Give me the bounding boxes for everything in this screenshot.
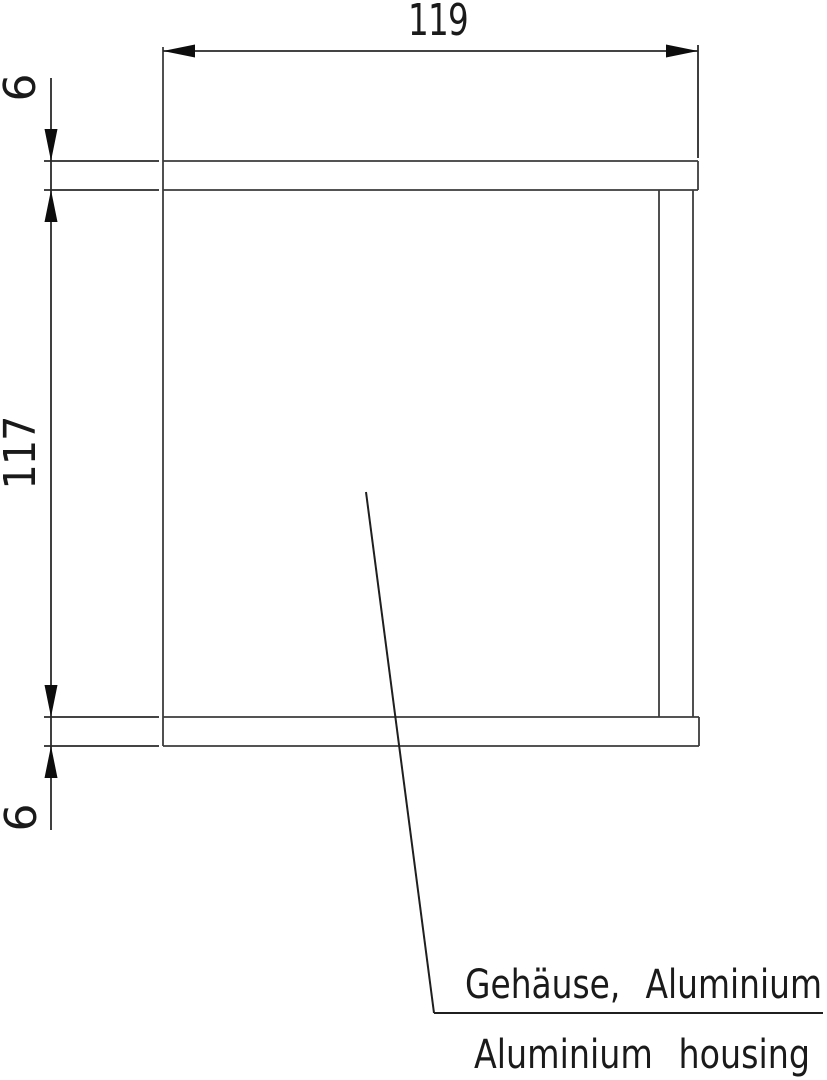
dimension-overall-width: 119 [163,0,698,158]
dimension-left-stack: 6 117 6 [0,75,159,832]
width-arrowhead-right-icon [666,45,698,58]
housing-outline [163,47,699,746]
callout-label-english: Aluminium housing [474,1032,810,1078]
inner-height-value: 117 [0,417,46,490]
callout-group: Gehäuse, Aluminium Aluminium housing [366,492,823,1078]
arrowhead-down-flange-top-icon [45,129,58,161]
arrowhead-down-band-top-icon [45,685,58,717]
width-arrowhead-left-icon [163,45,195,58]
arrowhead-up-band-bottom-icon [45,746,58,778]
arrowhead-up-flange-bottom-icon [45,190,58,222]
callout-label-german: Gehäuse, Aluminium [465,962,822,1008]
technical-drawing-svg: 119 6 117 6 Gehäuse, Aluminium Al [0,0,827,1080]
bottom-wall-thickness-value: 6 [0,805,47,832]
drawing-canvas: 119 6 117 6 Gehäuse, Aluminium Al [0,0,827,1080]
top-wall-thickness-value: 6 [0,75,46,102]
leader-line [366,492,434,1013]
width-dimension-value: 119 [408,0,468,46]
